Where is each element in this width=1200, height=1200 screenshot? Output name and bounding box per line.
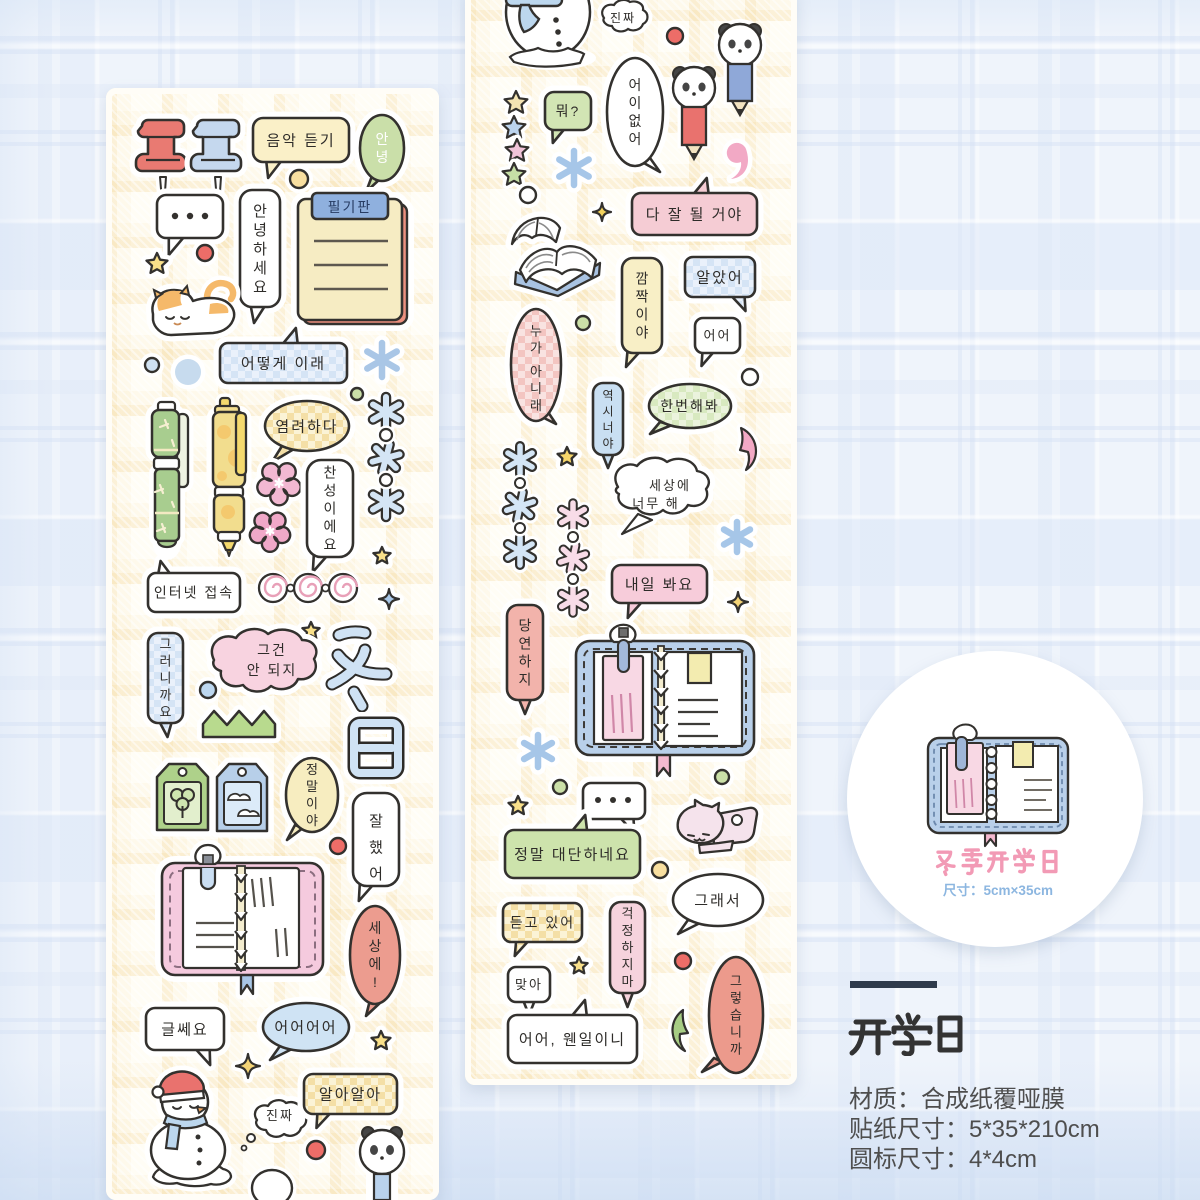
svg-text:세상에: 세상에 [649,478,691,493]
svg-text:안녕하세요: 안녕하세요 [253,203,267,296]
svg-text:너무 해: 너무 해 [632,496,680,511]
svg-text:어어어어: 어어어어 [274,1019,337,1036]
svg-text:음악 듣기: 음악 듣기 [266,132,335,149]
svg-text:어어, 웬일이니: 어어, 웬일이니 [519,1031,626,1048]
svg-text:뭐?: 뭐? [556,103,581,119]
svg-text:찬성이에요: 찬성이에요 [324,465,337,553]
svg-text:그러니까요: 그러니까요 [160,637,172,720]
svg-text:진짜: 진짜 [610,11,636,25]
svg-text:내일 봐요: 내일 봐요 [625,576,694,593]
svg-text:어어: 어어 [704,328,732,343]
svg-text:그건: 그건 [257,642,287,658]
svg-text:잘했어: 잘했어 [369,813,383,883]
svg-text:알았어: 알았어 [696,269,743,286]
svg-text:알아알아: 알아알아 [319,1086,382,1103]
svg-text:맞아: 맞아 [515,977,543,992]
svg-text:다 잘 될 거야: 다 잘 될 거야 [646,206,744,223]
svg-text:누가아니래: 누가아니래 [530,324,542,414]
svg-text:진짜: 진짜 [266,1108,294,1123]
svg-text:걱정하지마: 걱정하지마 [622,906,634,989]
svg-text:인터넷 접속: 인터넷 접속 [154,585,234,601]
svg-text:필기판: 필기판 [328,199,373,215]
svg-text:글쎄요: 글쎄요 [161,1021,208,1038]
svg-text:안 되지: 안 되지 [247,662,298,678]
svg-text:尺寸：5cm×35cm: 尺寸：5cm×35cm [943,882,1053,898]
svg-text:염려하다: 염려하다 [275,418,338,435]
svg-text:정말 대단하네요: 정말 대단하네요 [514,846,631,863]
svg-text:그래서: 그래서 [694,892,741,909]
svg-text:듣고 있어: 듣고 있어 [510,915,575,931]
svg-text:어떻게 이래: 어떻게 이래 [241,355,326,372]
svg-text:한번해봐: 한번해봐 [660,398,720,414]
svg-text:그렇습니까: 그렇습니까 [730,974,742,1057]
